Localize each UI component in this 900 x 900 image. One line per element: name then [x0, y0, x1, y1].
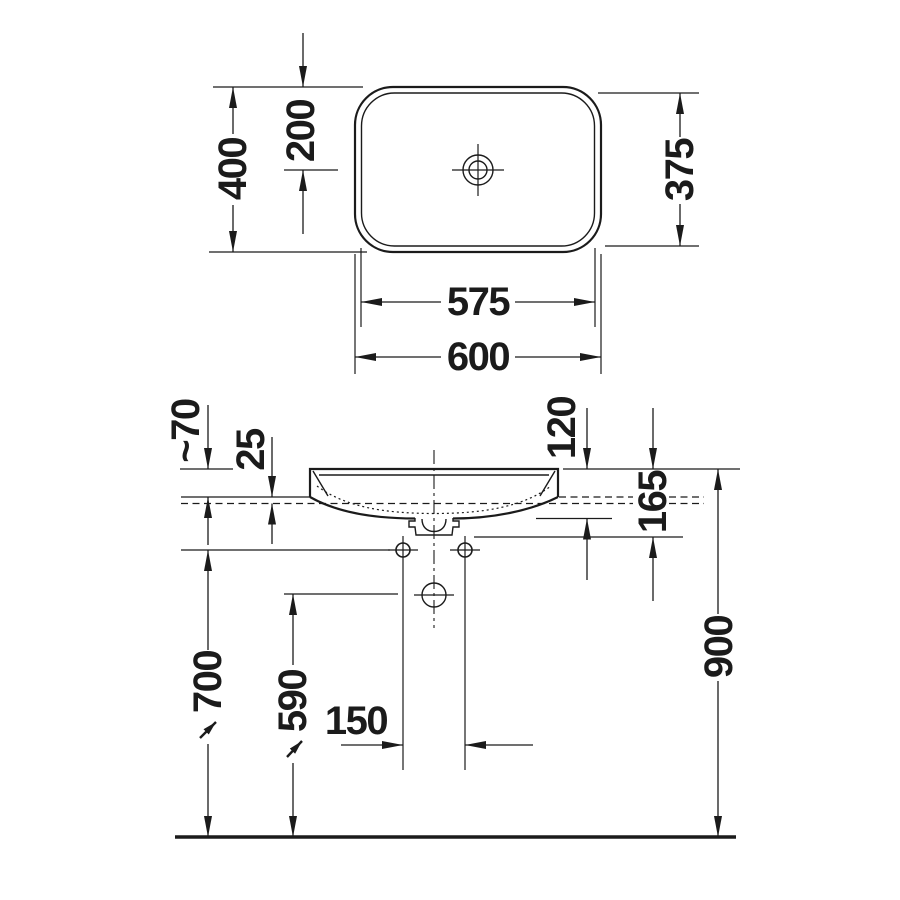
dim-label-rim-height: 900	[697, 616, 741, 678]
hole-extension-lines	[403, 536, 465, 770]
dim-label-hole-spacing: 150	[325, 699, 387, 743]
counter-hidden-lines	[181, 497, 704, 504]
dim-label-drain-height: 590	[271, 670, 315, 732]
drain-height-reference-arrow	[287, 741, 302, 757]
dim-label-outer-width: 600	[447, 335, 509, 379]
front-view: ~70 25 120 165 700 590 150 900	[164, 397, 741, 837]
technical-drawing-page: 400 200 375 575 600	[0, 0, 900, 900]
dim-label-bowl-depth: 120	[540, 397, 584, 459]
dim-label-inner-width: 575	[447, 280, 510, 324]
dim-label-outer-depth: 400	[211, 138, 255, 200]
dim-label-drain-offset: 200	[279, 100, 323, 162]
dim-label-overall-depth: 165	[631, 470, 675, 533]
dim-label-fixing-height: 700	[186, 651, 230, 713]
drain-crosshair	[452, 144, 504, 196]
dim-label-counter-thickness: 25	[229, 428, 273, 471]
fixing-height-reference-arrow	[200, 722, 216, 738]
dim-label-rim-above-counter: ~70	[164, 399, 208, 463]
dim-label-inner-depth: 375	[658, 138, 702, 201]
washbasin-dimension-drawing: 400 200 375 575 600	[0, 0, 900, 900]
plan-view: 400 200 375 575 600	[209, 33, 702, 379]
